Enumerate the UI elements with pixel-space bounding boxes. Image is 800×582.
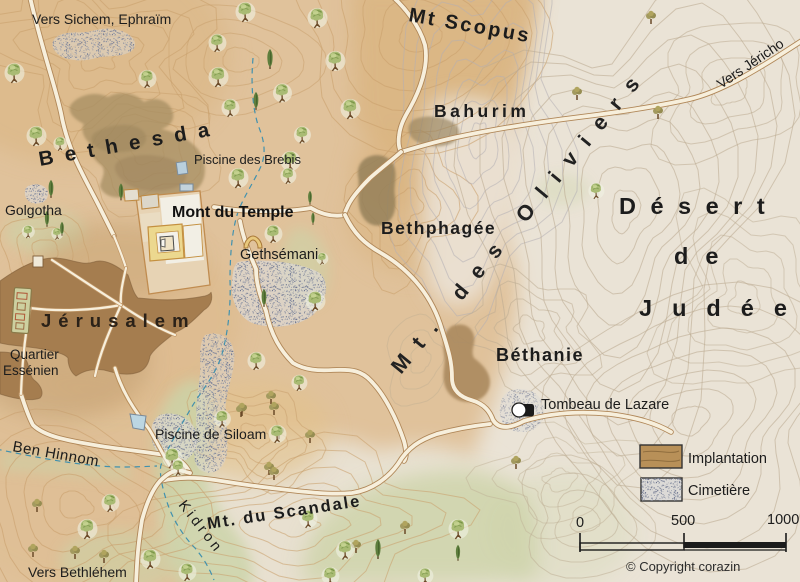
svg-text:Vers Bethléhem: Vers Bethléhem — [28, 564, 127, 580]
svg-text:Vers Sichem, Ephraïm: Vers Sichem, Ephraïm — [32, 11, 171, 27]
svg-text:Quartier: Quartier — [10, 347, 59, 362]
svg-text:Béthanie: Béthanie — [496, 345, 584, 365]
svg-text:Mont du Temple: Mont du Temple — [172, 204, 294, 221]
svg-text:Désert: Désert — [619, 193, 779, 219]
svg-text:Gethsémani: Gethsémani — [240, 247, 318, 263]
svg-text:Piscine de Siloam: Piscine de Siloam — [155, 426, 266, 442]
svg-text:Jérusalem: Jérusalem — [41, 310, 196, 331]
svg-text:Judée: Judée — [639, 295, 800, 321]
svg-text:Piscine des Brebis: Piscine des Brebis — [194, 152, 301, 167]
svg-text:1000: 1000 — [767, 512, 799, 528]
svg-text:Cimetière: Cimetière — [688, 483, 750, 499]
svg-text:Tombeau de Lazare: Tombeau de Lazare — [541, 397, 669, 413]
svg-text:Essénien: Essénien — [3, 363, 59, 378]
svg-text:500: 500 — [671, 513, 695, 529]
svg-text:0: 0 — [576, 515, 584, 531]
svg-text:Implantation: Implantation — [688, 451, 767, 467]
svg-text:Bahurim: Bahurim — [434, 101, 529, 121]
svg-text:© Copyright corazin: © Copyright corazin — [626, 559, 740, 574]
svg-text:Bethphagée: Bethphagée — [381, 218, 496, 238]
svg-text:de: de — [674, 243, 735, 269]
svg-text:Golgotha: Golgotha — [5, 202, 62, 218]
